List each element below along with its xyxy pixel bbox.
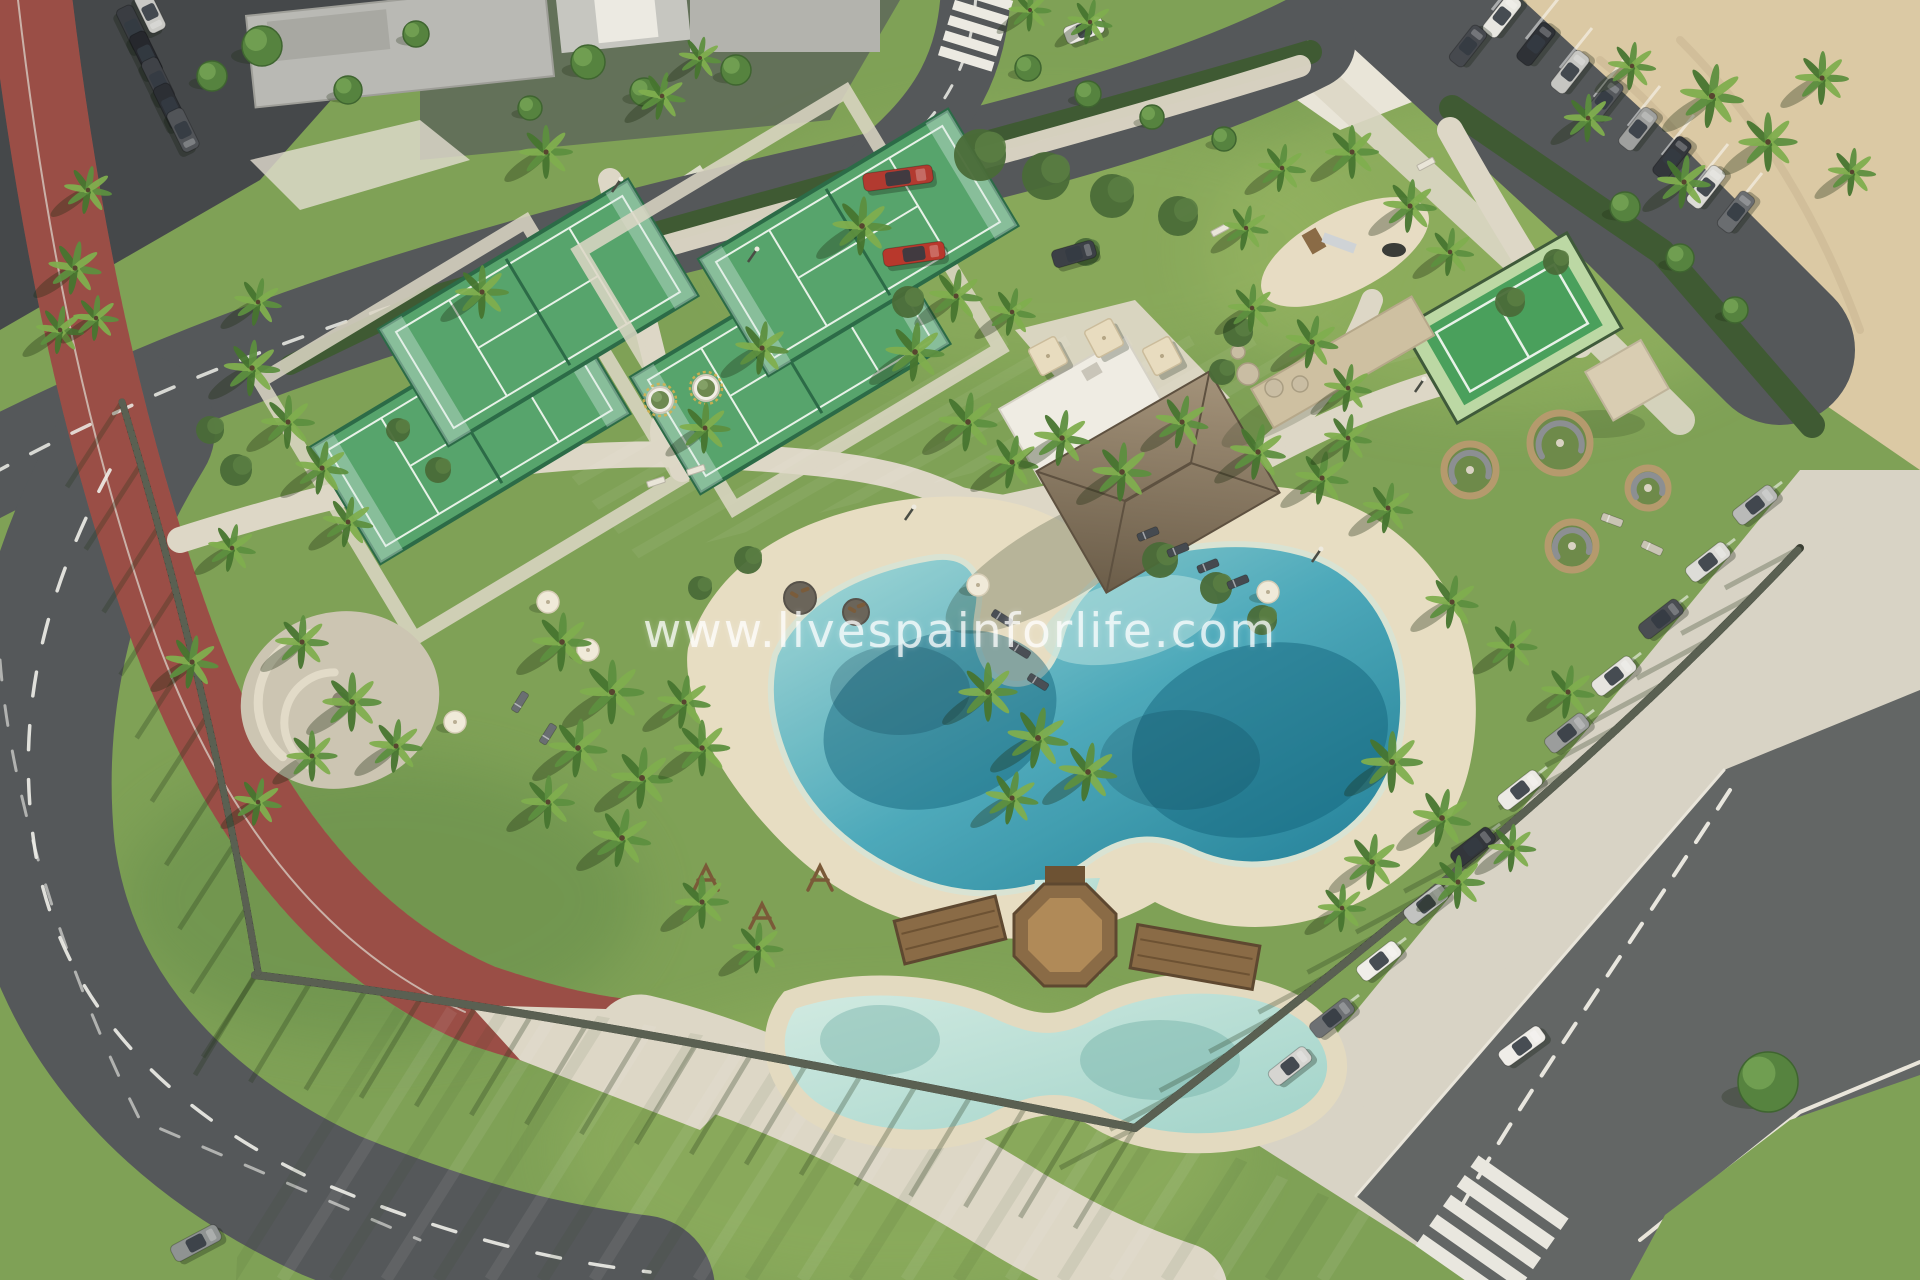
aerial-resort-photo: www.livespainforlife.com bbox=[0, 0, 1920, 1280]
shrub bbox=[386, 418, 410, 442]
play-ring bbox=[1382, 243, 1406, 257]
shrub bbox=[1247, 605, 1277, 635]
shrub bbox=[1090, 174, 1134, 218]
seating-pod bbox=[1530, 413, 1590, 473]
shrub bbox=[220, 454, 252, 486]
shrub bbox=[1495, 287, 1525, 317]
shrub bbox=[1022, 152, 1070, 200]
shrub bbox=[954, 129, 1006, 181]
scene-canvas bbox=[0, 0, 1920, 1280]
seating-pod bbox=[1548, 522, 1596, 570]
boulder bbox=[1237, 363, 1259, 385]
seating-pod bbox=[1628, 468, 1668, 508]
shrub bbox=[196, 416, 224, 444]
secondary-building bbox=[690, 0, 880, 52]
shrub bbox=[1200, 572, 1232, 604]
shrub bbox=[1209, 359, 1235, 385]
mulch-circle bbox=[784, 582, 816, 614]
shrub bbox=[1142, 542, 1178, 578]
mulch-circle bbox=[843, 599, 869, 625]
shrub bbox=[1543, 249, 1569, 275]
shrub bbox=[425, 457, 451, 483]
seating-pod bbox=[1444, 444, 1496, 496]
boulder bbox=[1231, 345, 1245, 359]
shrub bbox=[734, 546, 762, 574]
boulder bbox=[1265, 379, 1283, 397]
boulder bbox=[1292, 376, 1308, 392]
shrub bbox=[892, 286, 924, 318]
shrub bbox=[1158, 196, 1198, 236]
shrub bbox=[688, 576, 712, 600]
